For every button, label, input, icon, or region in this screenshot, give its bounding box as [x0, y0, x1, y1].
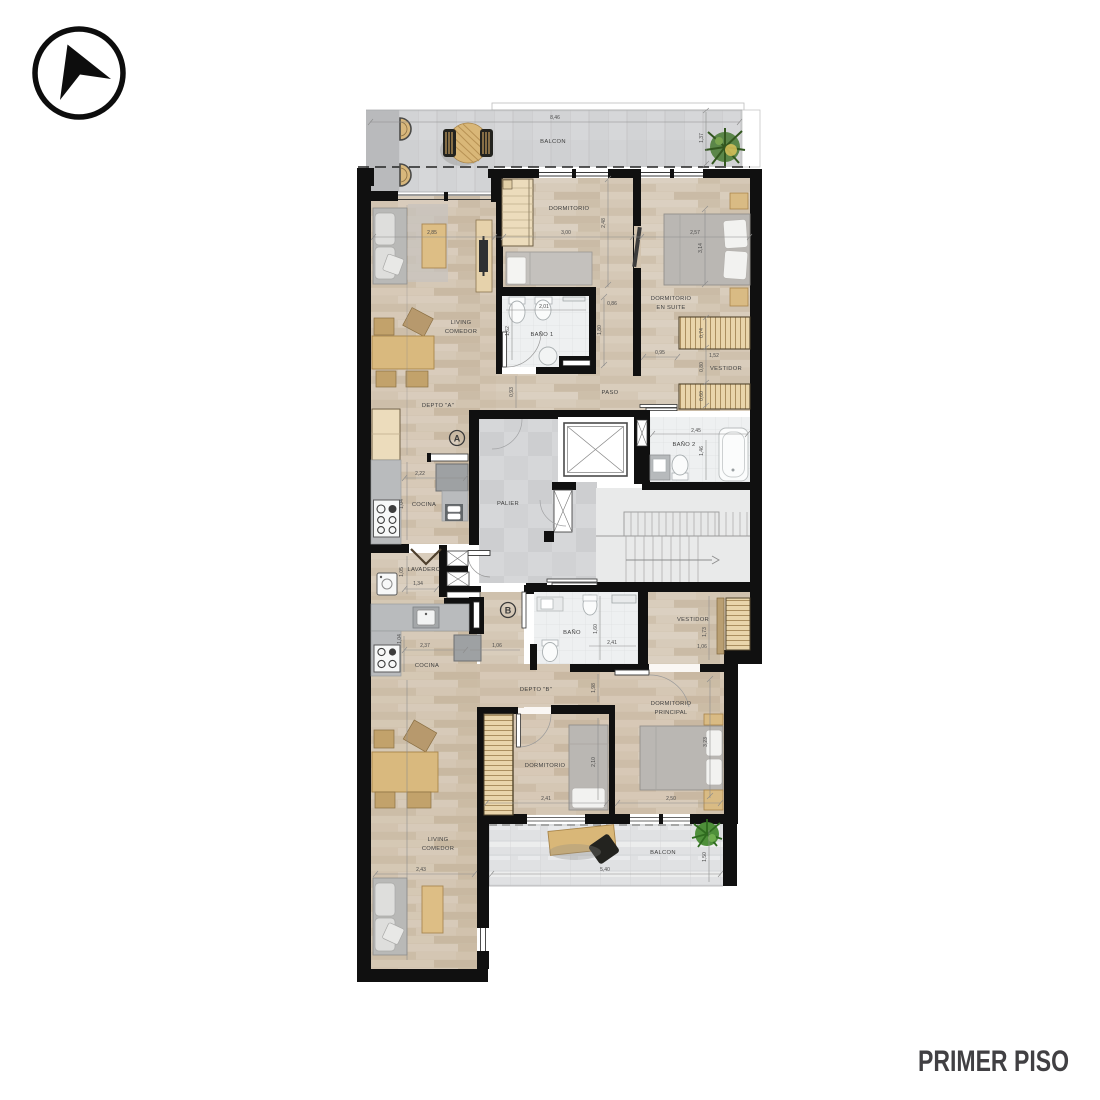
- svg-text:COCINA: COCINA: [415, 663, 439, 669]
- svg-text:3,14: 3,14: [698, 243, 704, 253]
- svg-text:2,10: 2,10: [591, 757, 597, 767]
- svg-text:PASO: PASO: [602, 390, 619, 396]
- svg-text:0,95: 0,95: [655, 350, 665, 356]
- svg-text:0,86: 0,86: [607, 301, 617, 307]
- svg-text:2,37: 2,37: [420, 643, 430, 649]
- svg-text:COMEDOR: COMEDOR: [445, 329, 477, 335]
- svg-text:VESTIDOR: VESTIDOR: [710, 366, 742, 372]
- svg-text:3,23: 3,23: [703, 737, 709, 747]
- svg-text:DORMITORIO: DORMITORIO: [651, 296, 692, 302]
- svg-text:3,00: 3,00: [561, 230, 571, 236]
- svg-text:1,34: 1,34: [413, 581, 423, 587]
- svg-text:1,06: 1,06: [492, 643, 502, 649]
- svg-text:2,01: 2,01: [539, 304, 549, 310]
- svg-text:0,74: 0,74: [699, 328, 705, 338]
- svg-text:DORMITORIO: DORMITORIO: [549, 206, 590, 212]
- svg-text:B: B: [505, 606, 512, 616]
- svg-text:EN SUITE: EN SUITE: [656, 305, 685, 311]
- svg-text:DEPTO "B": DEPTO "B": [520, 687, 552, 693]
- svg-text:2,45: 2,45: [691, 428, 701, 434]
- svg-text:LIVING: LIVING: [428, 837, 449, 843]
- svg-text:BALCON: BALCON: [540, 139, 566, 145]
- svg-text:1,62: 1,62: [505, 326, 511, 336]
- svg-text:1,52: 1,52: [709, 353, 719, 359]
- svg-text:1,60: 1,60: [593, 624, 599, 634]
- svg-text:1,50: 1,50: [702, 852, 708, 862]
- svg-text:VESTIDOR: VESTIDOR: [677, 617, 709, 623]
- svg-text:DORMITORIO: DORMITORIO: [525, 763, 566, 769]
- svg-text:2,48: 2,48: [601, 218, 607, 228]
- svg-text:2,43: 2,43: [416, 867, 426, 873]
- svg-text:A: A: [454, 434, 461, 444]
- svg-text:1,04: 1,04: [397, 634, 403, 644]
- svg-text:1,05: 1,05: [399, 567, 405, 577]
- svg-text:0,93: 0,93: [509, 387, 515, 397]
- svg-text:BAÑO 2: BAÑO 2: [672, 441, 695, 448]
- svg-text:DORMITORIO: DORMITORIO: [651, 701, 692, 707]
- svg-text:BAÑO 1: BAÑO 1: [530, 331, 553, 338]
- svg-text:LIVING: LIVING: [451, 320, 472, 326]
- svg-text:2,41: 2,41: [607, 640, 617, 646]
- svg-text:2,57: 2,57: [690, 230, 700, 236]
- svg-text:1,80: 1,80: [597, 325, 603, 335]
- svg-text:LAVADERO: LAVADERO: [407, 567, 440, 573]
- svg-text:DEPTO "A": DEPTO "A": [422, 403, 454, 409]
- svg-text:2,50: 2,50: [666, 796, 676, 802]
- svg-text:PRINCIPAL: PRINCIPAL: [655, 710, 688, 716]
- svg-text:PALIER: PALIER: [497, 501, 519, 507]
- svg-text:COCINA: COCINA: [412, 502, 436, 508]
- svg-text:2,85: 2,85: [427, 230, 437, 236]
- svg-text:5,40: 5,40: [600, 867, 610, 873]
- svg-text:1,06: 1,06: [697, 644, 707, 650]
- svg-text:1,04: 1,04: [399, 499, 405, 509]
- svg-text:COMEDOR: COMEDOR: [422, 846, 454, 852]
- svg-text:1,98: 1,98: [591, 683, 597, 693]
- svg-text:1,46: 1,46: [699, 446, 705, 456]
- svg-text:PRIMER PISO: PRIMER PISO: [918, 1045, 1069, 1078]
- svg-text:BAÑO: BAÑO: [563, 629, 581, 636]
- svg-text:BALCON: BALCON: [650, 850, 676, 856]
- svg-text:0,80: 0,80: [699, 362, 705, 372]
- svg-text:2,22: 2,22: [415, 471, 425, 477]
- svg-text:1,37: 1,37: [699, 133, 705, 143]
- svg-text:1,73: 1,73: [702, 627, 708, 637]
- svg-text:2,41: 2,41: [541, 796, 551, 802]
- svg-text:0,60: 0,60: [699, 391, 705, 401]
- svg-text:8,46: 8,46: [550, 115, 560, 121]
